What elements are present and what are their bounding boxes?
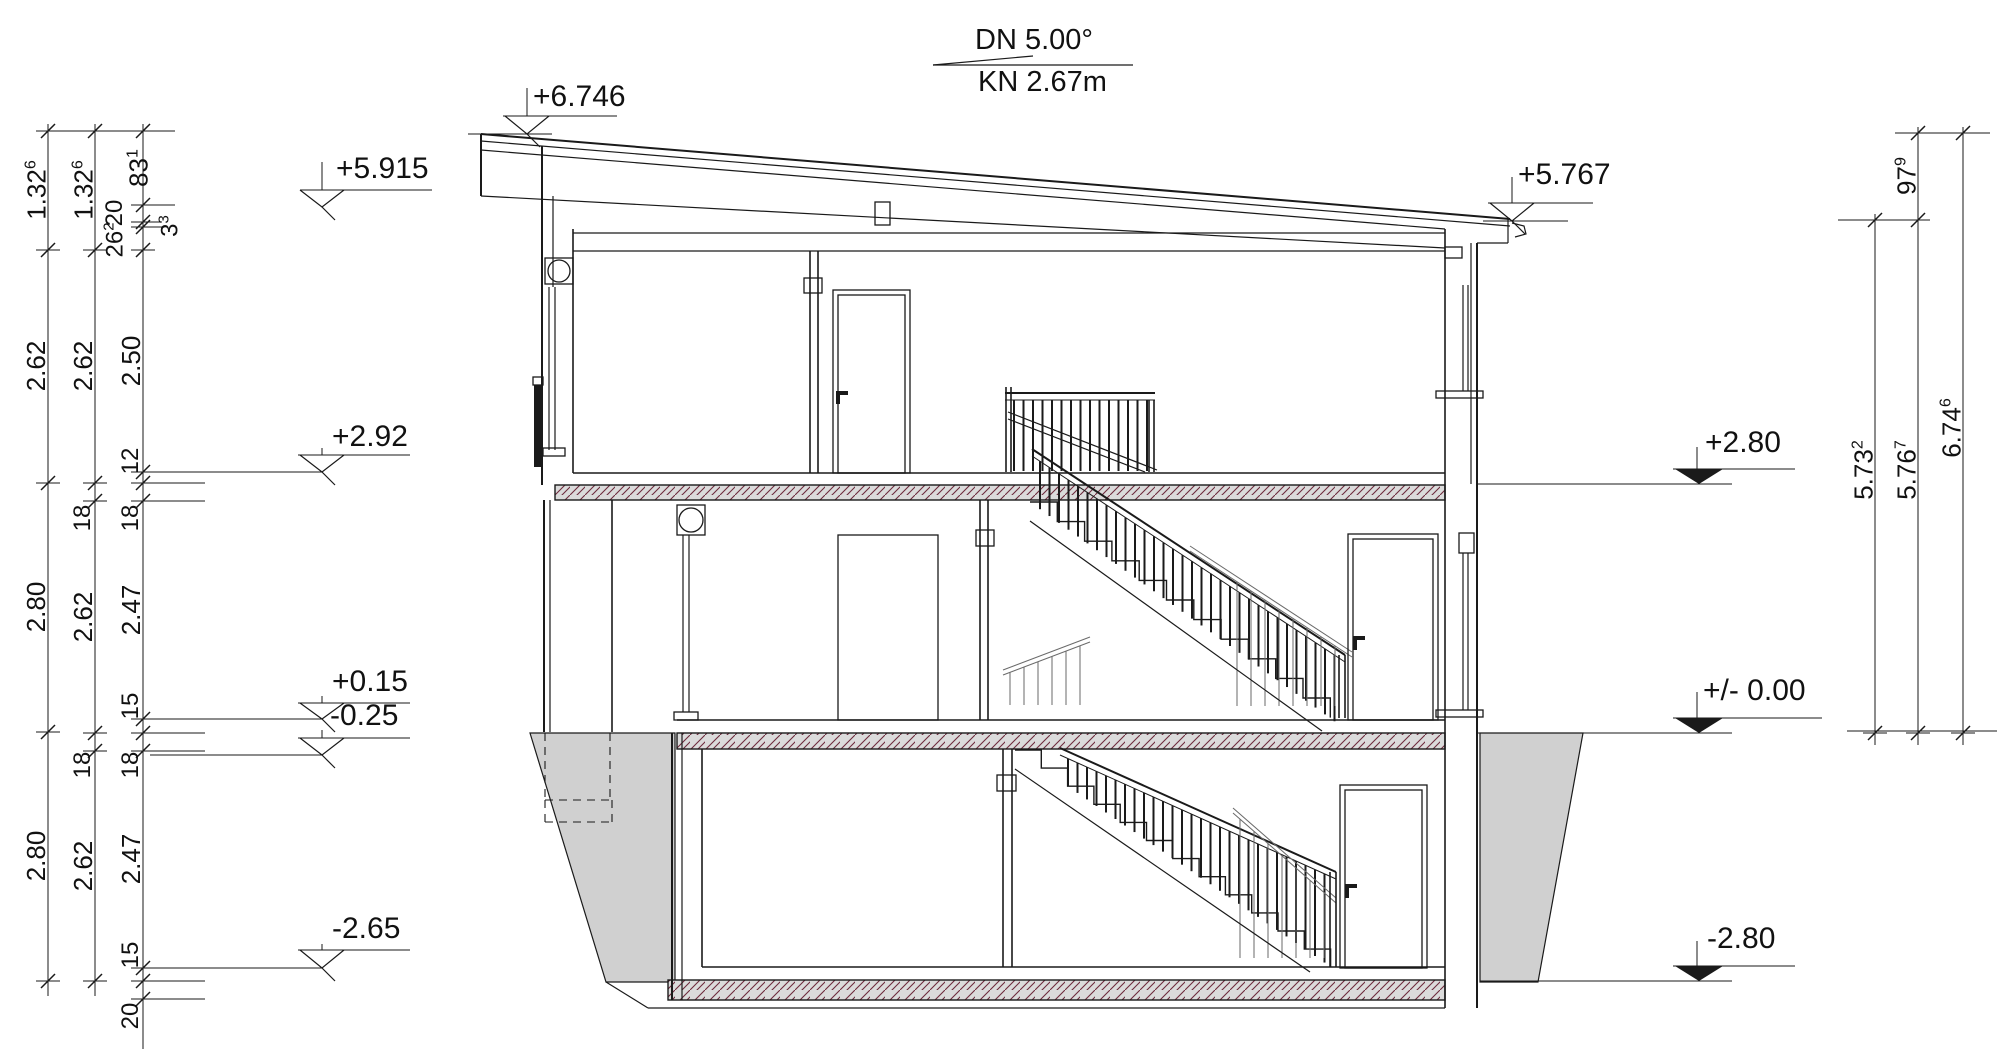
structure-rect (1353, 539, 1433, 720)
floor-slab-hatch (555, 485, 1445, 500)
structure-rect (1436, 710, 1483, 717)
level-marker-tail (322, 472, 335, 485)
dimension-label: 2.80 (23, 831, 49, 882)
dimension-label: 2.62 (70, 341, 96, 392)
dimension-label: 1.326 (23, 160, 50, 220)
dimension-label: 1.326 (70, 160, 97, 220)
dimension-label: 18 (71, 505, 95, 532)
level-label-uk-eg: -0.25 (330, 701, 398, 731)
dimension-label: 33 (158, 215, 183, 237)
roof-eave-length-label: KN 2.67m (978, 68, 1107, 97)
structure-line (1008, 412, 1157, 470)
level-marker-ff-kg (300, 950, 344, 968)
structure-rect (976, 530, 994, 546)
gutter-profile (1512, 223, 1526, 237)
door-handle (1353, 636, 1357, 650)
structure-rect (1348, 534, 1438, 720)
structure-rect (838, 295, 905, 473)
door-handle (534, 385, 543, 467)
ground-fill (1480, 733, 1583, 982)
dimension-label: 12 (119, 448, 143, 475)
dimension-label: 262 (103, 223, 128, 258)
dimension-label: 2.47 (118, 585, 144, 636)
railing-handrail (1190, 546, 1352, 652)
dimension-label: 15 (119, 693, 143, 720)
structure-rect (677, 505, 705, 535)
structure-rect (1445, 247, 1462, 258)
floor-slab-hatch (677, 733, 1445, 749)
structure-line (481, 196, 1445, 248)
level-marker-slab-kg (1675, 966, 1723, 981)
structure-line (933, 56, 1033, 65)
purlin-section-circle (548, 260, 570, 282)
level-label-slab-kg: -2.80 (1707, 924, 1775, 954)
section-linework (0, 0, 2000, 1049)
dimension-label: 20 (119, 1003, 143, 1030)
structure-rect (545, 258, 573, 284)
structure-rect (804, 278, 822, 293)
door-handle (836, 391, 840, 404)
dimension-label: 6.746 (1938, 398, 1965, 458)
level-label-eave-right: +5.767 (1518, 160, 1611, 190)
level-marker-tail (1512, 221, 1525, 234)
structure-line (606, 982, 648, 1008)
railing-handrail (1060, 748, 1336, 872)
level-marker-uk-eg (300, 738, 344, 755)
structure-rect (833, 290, 910, 473)
structure-rect (674, 712, 698, 720)
structure-rect (1340, 785, 1427, 968)
level-marker-tail (322, 207, 335, 220)
floor-slab-hatch (668, 980, 1445, 1000)
dimension-label: 18 (119, 505, 143, 532)
dimension-label: 5.767 (1893, 440, 1920, 500)
level-marker-slab-og (1675, 469, 1723, 484)
structure-line (1015, 769, 1310, 972)
level-marker-eave-left (300, 190, 344, 207)
structure-line (1008, 419, 1145, 472)
level-label-peak: +6.746 (533, 82, 626, 112)
ground-fill (530, 733, 675, 982)
railing-handrail (1032, 449, 1345, 655)
level-marker-tail (322, 755, 335, 768)
railing-handrail (1190, 551, 1352, 657)
railing-handrail (1003, 637, 1090, 670)
dimension-label: 2.62 (70, 592, 96, 643)
dimension-label: 18 (71, 752, 95, 779)
purlin-section-circle (679, 508, 703, 532)
level-marker-tail (322, 968, 335, 981)
structure-rect (1459, 533, 1474, 553)
dimension-label: 5.732 (1850, 440, 1877, 500)
dimension-label: 979 (1893, 157, 1920, 195)
dimension-label: 2.62 (70, 841, 96, 892)
level-marker-peak (505, 116, 549, 134)
structure-rect (1436, 391, 1483, 398)
dimension-label: 2.50 (118, 336, 144, 387)
dimension-label: 831 (125, 149, 152, 187)
roof-slope-label: DN 5.00° (975, 26, 1093, 55)
structure-line (481, 134, 1510, 219)
structure-rect (838, 535, 938, 720)
structure-rect (875, 202, 890, 225)
level-label-slab-og: +2.80 (1705, 428, 1781, 458)
dimension-label: 2.62 (23, 341, 49, 392)
level-label-ff-og: +2.92 (332, 422, 408, 452)
stair-flight (1030, 502, 1330, 718)
level-label-ff-kg: -2.65 (332, 914, 400, 944)
door-handle (1345, 884, 1349, 898)
level-label-eave-left: +5.915 (336, 154, 429, 184)
dimension-label: 15 (119, 942, 143, 969)
section-drawing-canvas: DN 5.00° KN 2.67m +6.746+5.915+2.92+0.15… (0, 0, 2000, 1049)
railing-handrail (1060, 755, 1336, 879)
railing-handrail (1003, 642, 1090, 675)
structure-line (481, 141, 1510, 226)
structure-rect (1345, 790, 1422, 968)
stair-flight (1015, 750, 1331, 967)
structure-line (481, 150, 1445, 229)
level-label-zero: +/- 0.00 (1703, 676, 1806, 706)
level-label-ff-eg: +0.15 (332, 667, 408, 697)
level-marker-ff-og (300, 455, 344, 472)
structure-rect (543, 448, 565, 456)
dimension-label: 2.80 (23, 582, 49, 633)
dimension-label: 18 (119, 752, 143, 779)
structure-rect (997, 775, 1016, 791)
dimension-label: 2.47 (118, 834, 144, 885)
level-marker-zero (1675, 718, 1723, 733)
